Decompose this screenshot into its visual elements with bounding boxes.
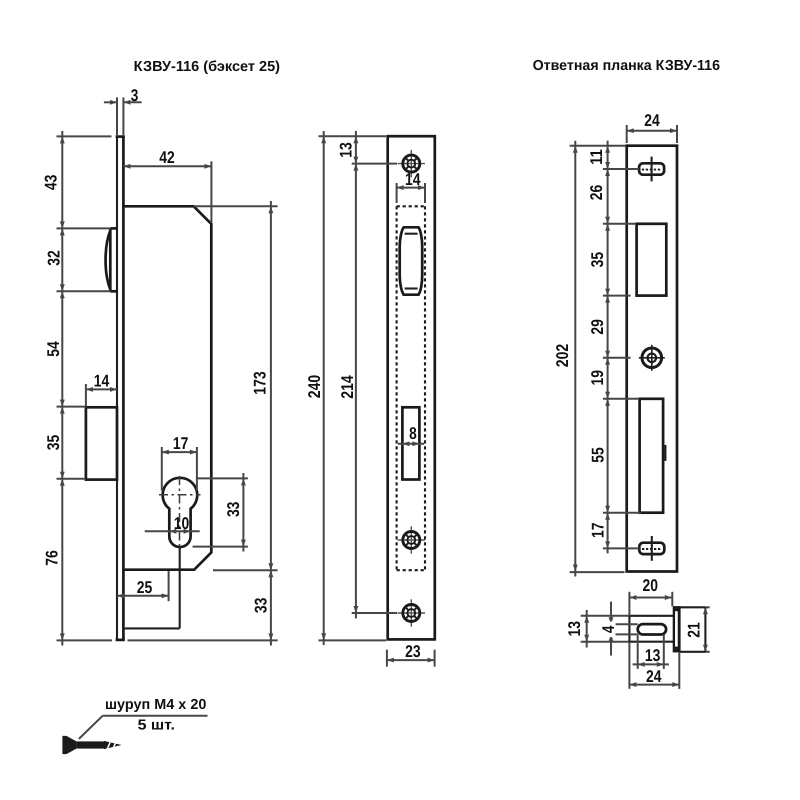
svg-text:29: 29: [588, 319, 607, 335]
svg-text:55: 55: [588, 447, 607, 463]
svg-text:76: 76: [42, 550, 61, 566]
svg-text:5 шт.: 5 шт.: [138, 718, 175, 734]
svg-text:13: 13: [565, 621, 584, 637]
svg-text:24: 24: [644, 111, 660, 130]
svg-text:32: 32: [44, 250, 63, 266]
svg-text:173: 173: [251, 371, 270, 394]
svg-text:54: 54: [44, 341, 63, 357]
svg-text:21: 21: [684, 622, 703, 638]
svg-text:13: 13: [645, 646, 661, 665]
svg-text:10: 10: [174, 514, 190, 533]
svg-text:24: 24: [646, 667, 662, 686]
svg-text:20: 20: [643, 576, 659, 595]
svg-text:шуруп М4 х 20: шуруп М4 х 20: [105, 697, 206, 713]
svg-text:43: 43: [41, 175, 60, 191]
svg-text:8: 8: [409, 424, 417, 443]
svg-text:240: 240: [305, 375, 324, 398]
svg-text:214: 214: [338, 375, 357, 399]
svg-text:25: 25: [137, 578, 153, 597]
svg-text:23: 23: [405, 642, 421, 661]
svg-text:35: 35: [44, 435, 63, 451]
svg-text:33: 33: [252, 598, 271, 614]
svg-text:Ответная планка КЗВУ-116: Ответная планка КЗВУ-116: [533, 58, 720, 74]
svg-text:11: 11: [587, 149, 606, 165]
svg-text:КЗВУ-116 (бэксет 25): КЗВУ-116 (бэксет 25): [134, 59, 281, 75]
svg-text:33: 33: [224, 502, 243, 518]
svg-text:42: 42: [159, 148, 175, 167]
svg-text:202: 202: [553, 344, 572, 367]
svg-text:35: 35: [588, 252, 607, 268]
svg-text:13: 13: [337, 142, 356, 158]
svg-text:26: 26: [587, 185, 606, 201]
svg-text:14: 14: [94, 371, 110, 390]
svg-text:3: 3: [131, 86, 139, 105]
svg-text:17: 17: [173, 434, 189, 453]
svg-text:17: 17: [588, 522, 607, 538]
svg-text:14: 14: [405, 170, 421, 189]
svg-text:4: 4: [599, 625, 618, 633]
svg-text:19: 19: [588, 370, 607, 386]
